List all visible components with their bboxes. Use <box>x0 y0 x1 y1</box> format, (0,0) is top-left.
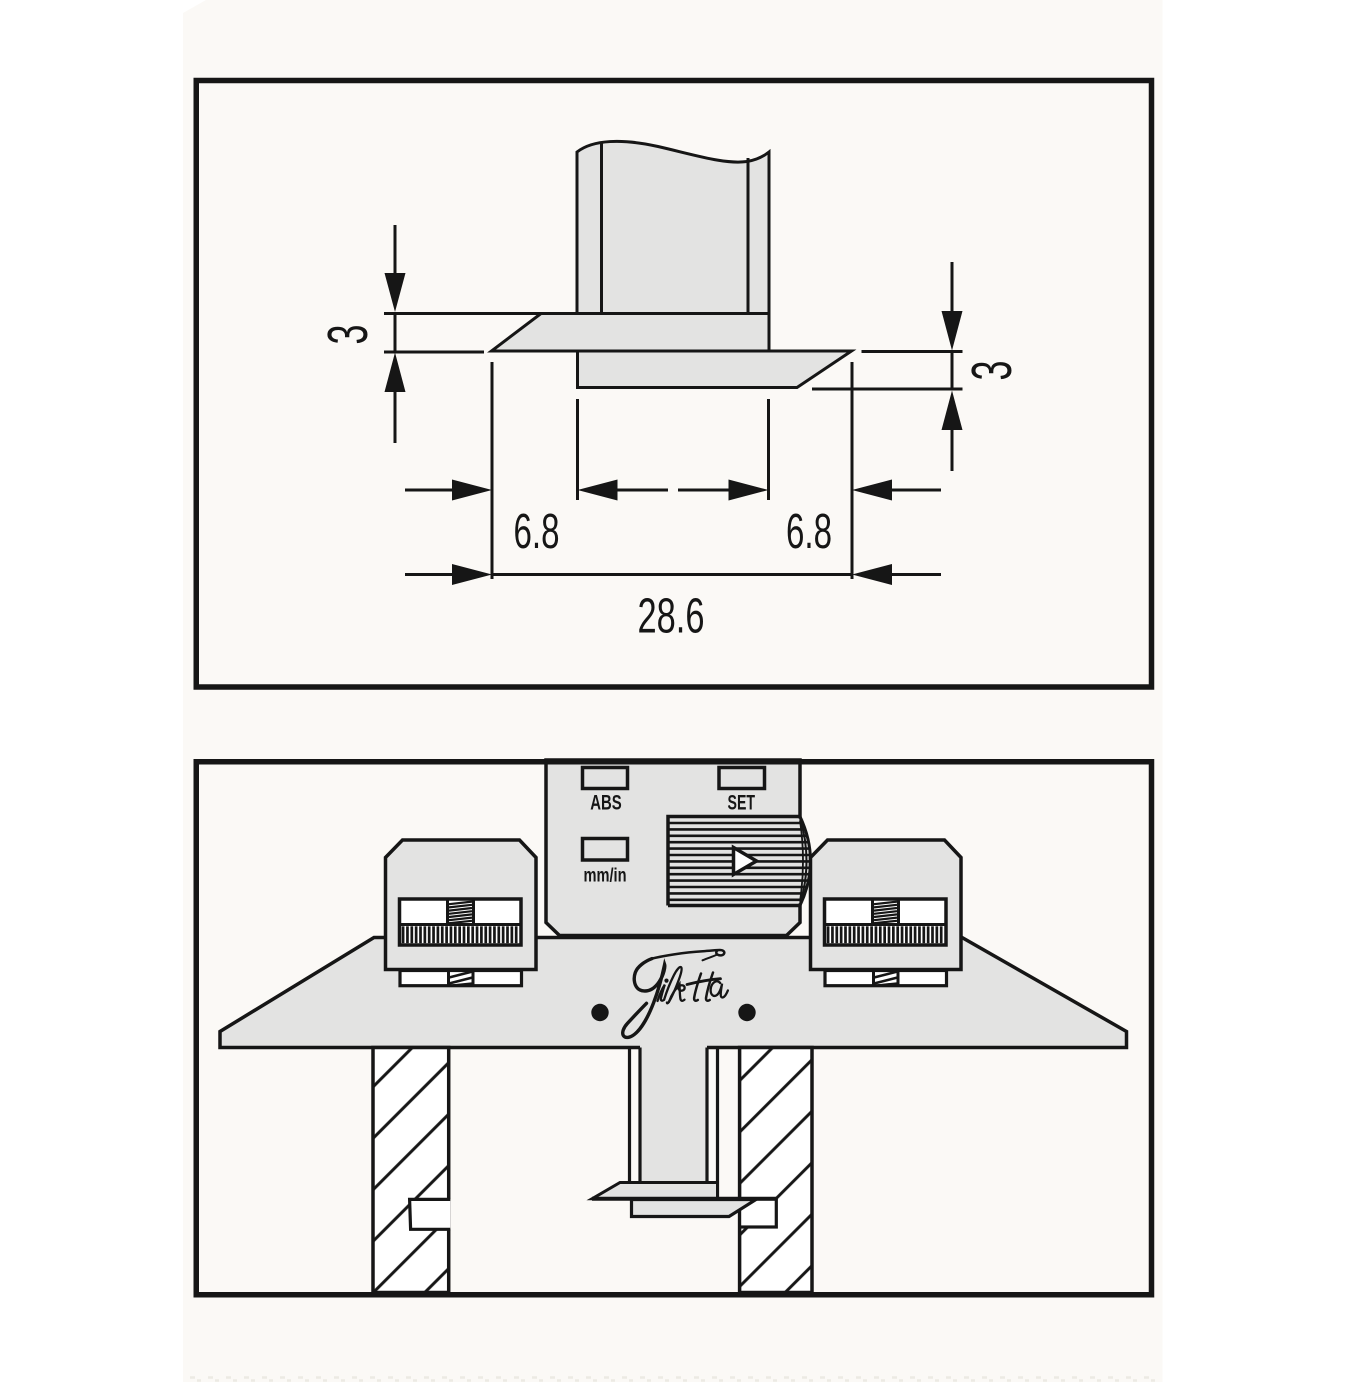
svg-text:SET: SET <box>728 791 756 814</box>
svg-text:3: 3 <box>316 325 380 345</box>
svg-text:3: 3 <box>960 361 1024 381</box>
svg-text:6.8: 6.8 <box>786 505 832 559</box>
svg-text:28.6: 28.6 <box>638 590 705 644</box>
svg-text:mm/in: mm/in <box>584 866 627 887</box>
svg-text:ABS: ABS <box>590 791 622 814</box>
svg-text:6.8: 6.8 <box>514 505 560 559</box>
